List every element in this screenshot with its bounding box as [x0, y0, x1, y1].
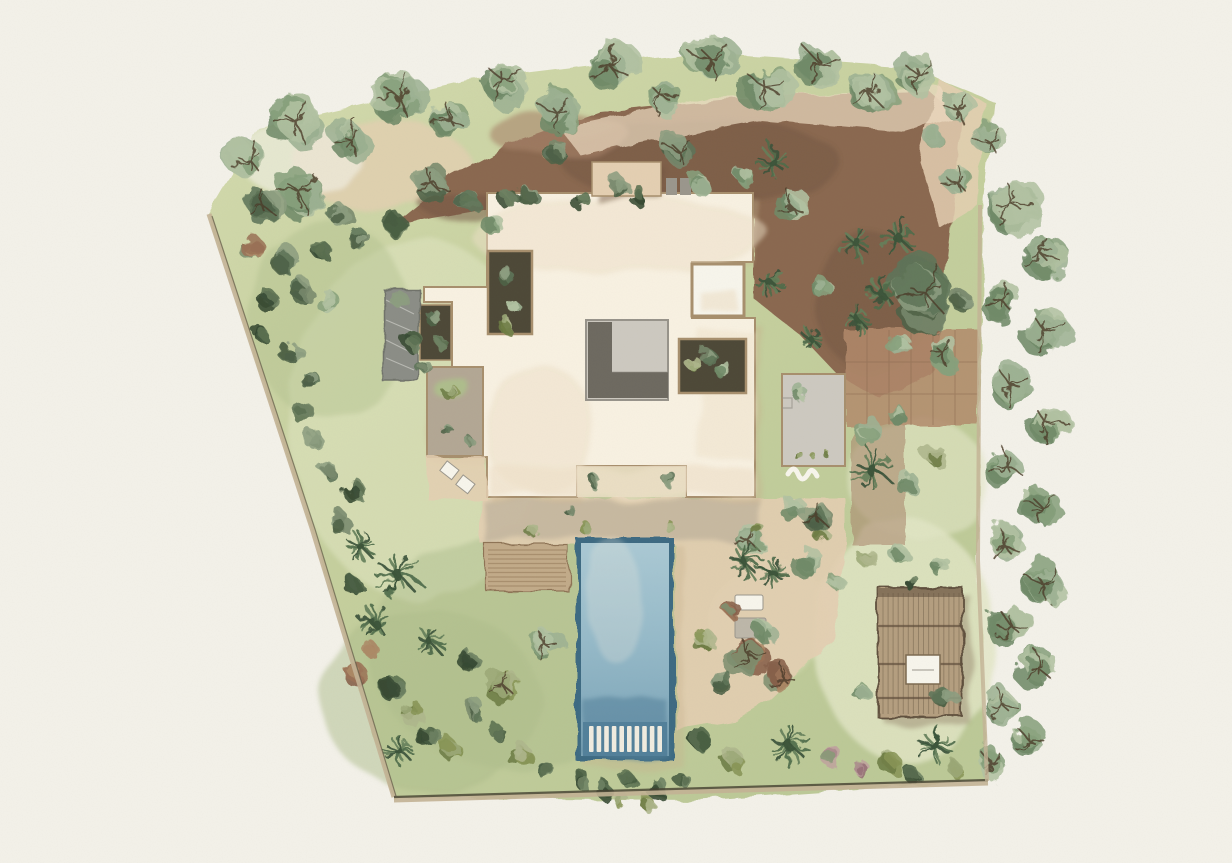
site-plan-illustration [0, 0, 1232, 863]
site-plan-page [0, 0, 1232, 863]
paper-grain-overlay [0, 0, 1232, 863]
